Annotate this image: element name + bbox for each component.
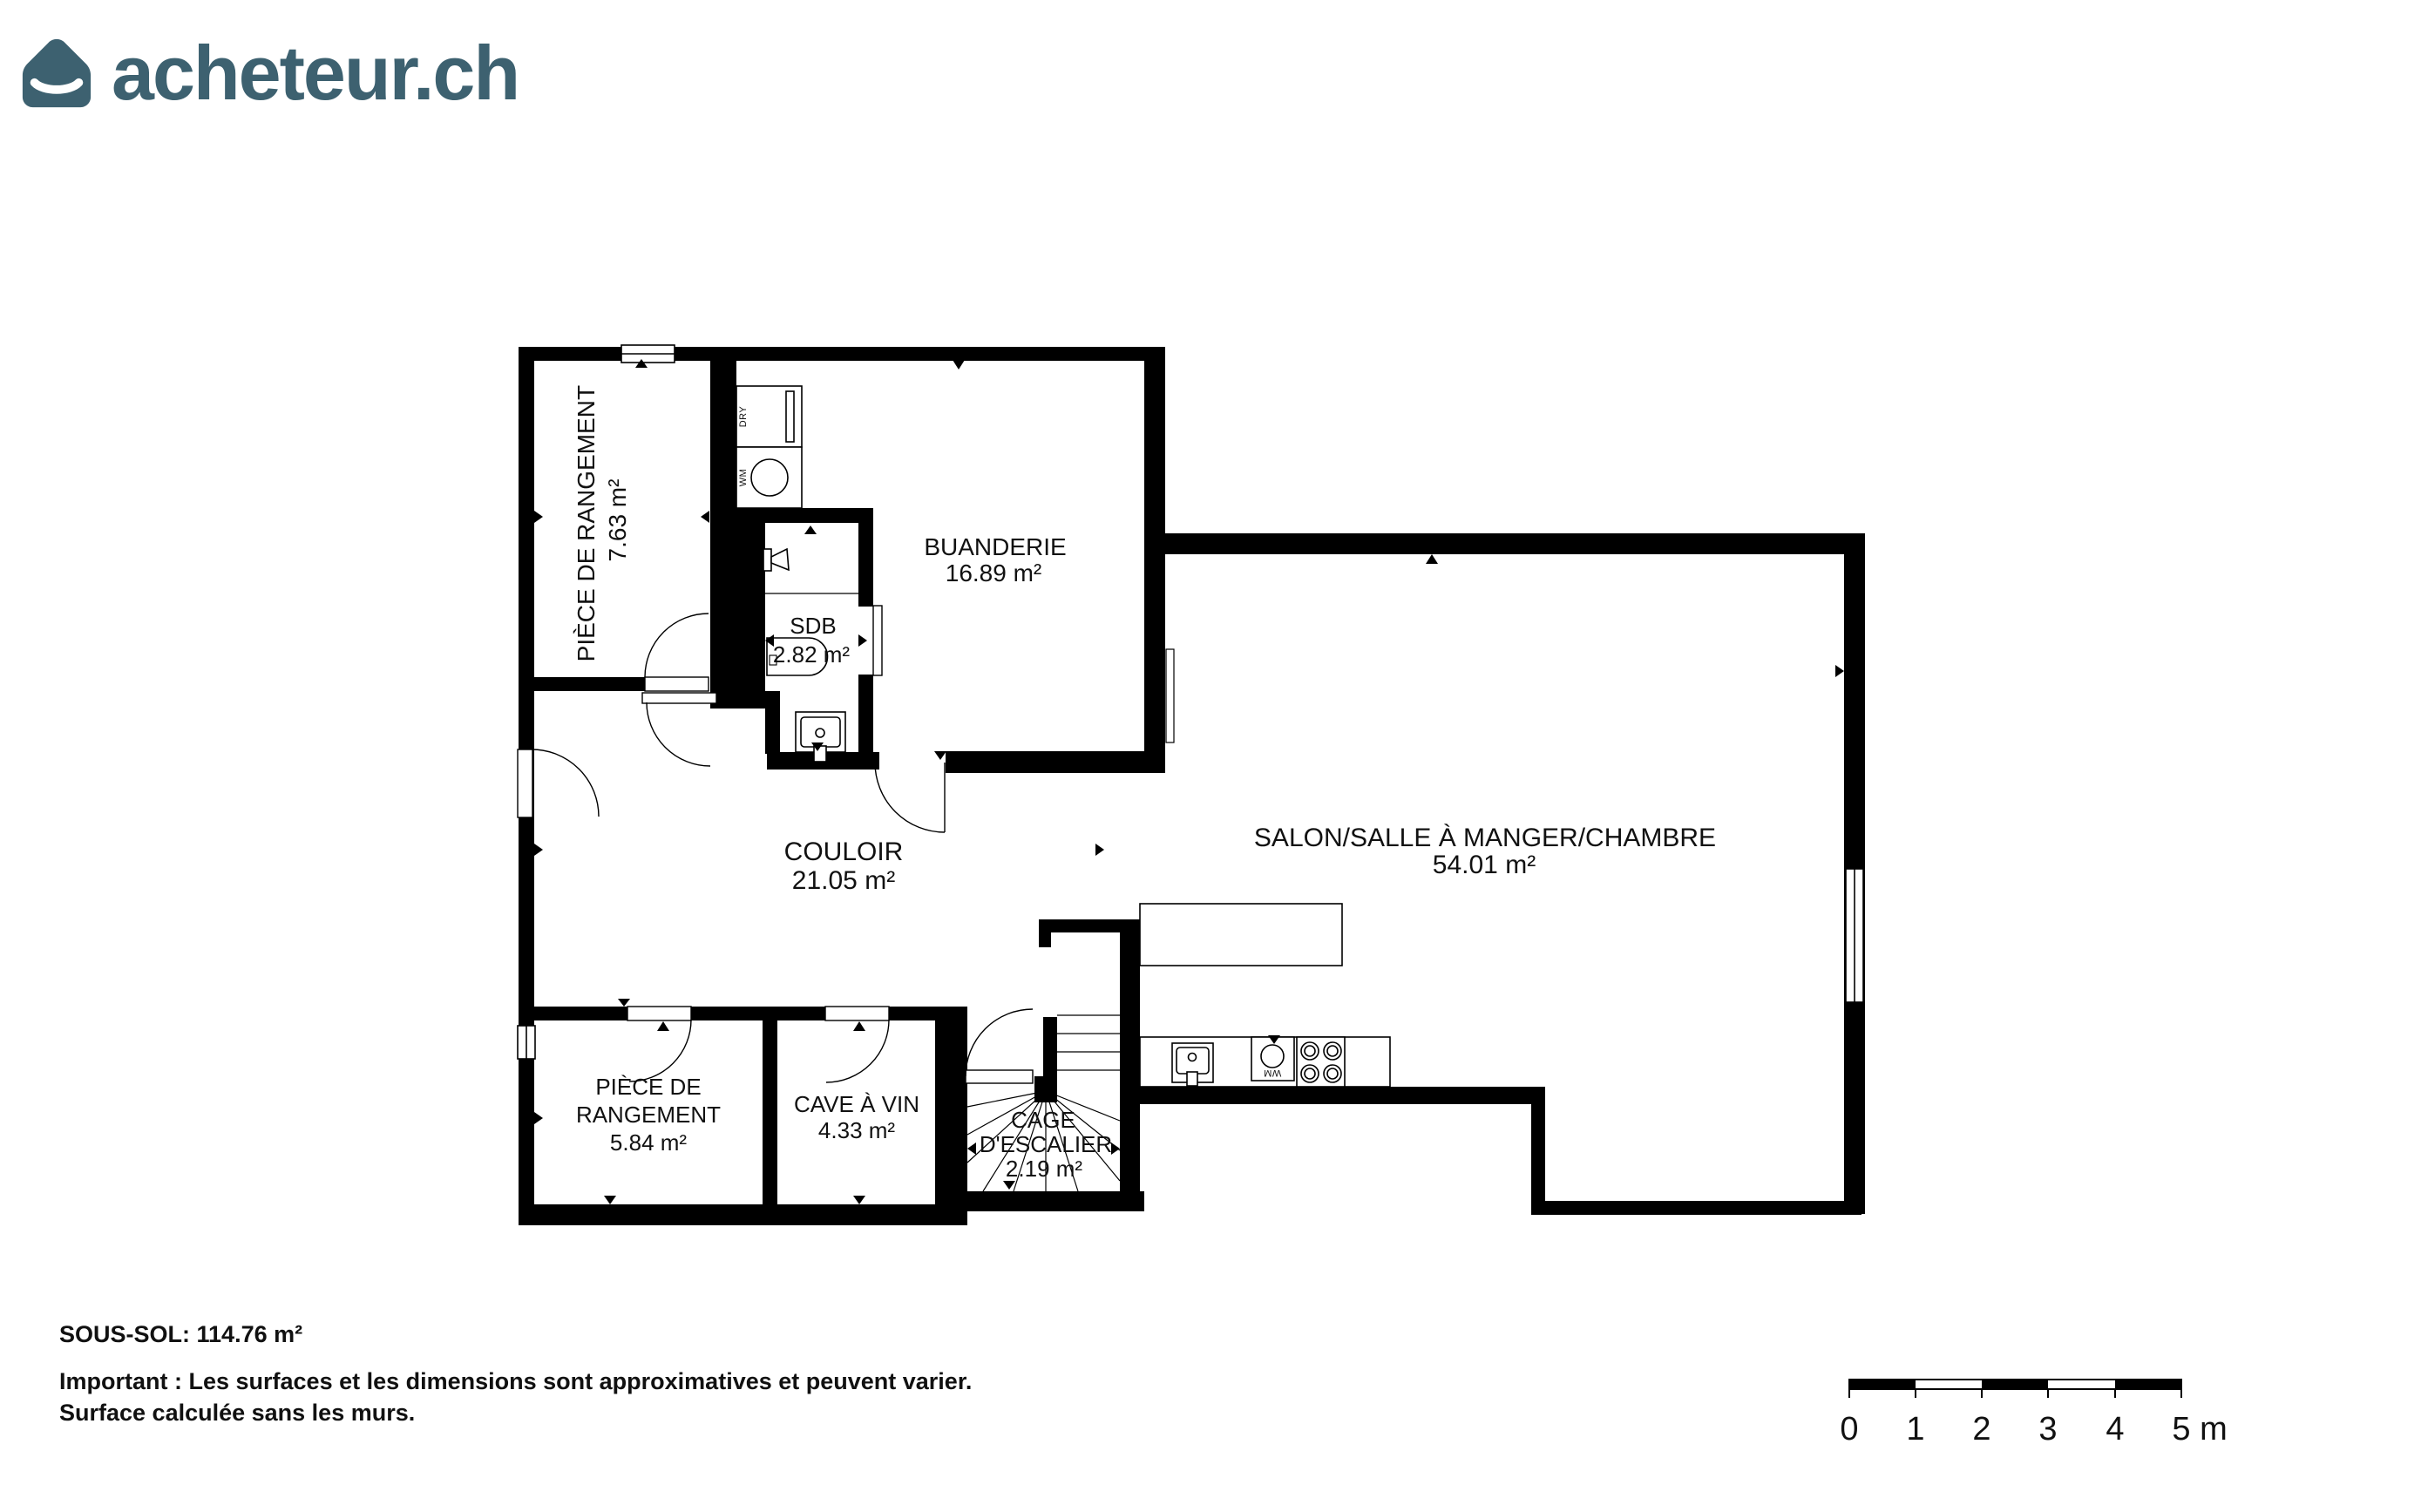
kitchen-washer-label: WM — [1264, 1068, 1282, 1078]
shower-head-icon — [763, 549, 789, 571]
room-label-wine-cellar: CAVE À VIN 4.33 m² — [794, 1091, 919, 1143]
svg-text:D'ESCALIER: D'ESCALIER — [980, 1131, 1112, 1157]
door-storage-bottom — [627, 1007, 691, 1081]
svg-text:COULOIR: COULOIR — [784, 837, 904, 866]
fixtures — [736, 386, 1390, 1087]
washer-label: WM — [738, 469, 749, 487]
window-right — [1846, 869, 1863, 1002]
disclaimer-line-2: Surface calculée sans les murs. — [59, 1400, 415, 1427]
door-hallway-left — [518, 749, 599, 817]
walls — [519, 347, 1865, 1225]
room-label-storage-bottom: PIÈCE DE RANGEMENT 5.84 m² — [576, 1074, 721, 1156]
svg-text:1: 1 — [1906, 1411, 1924, 1448]
door-storage-top — [642, 614, 716, 766]
room-label-living: SALON/SALLE À MANGER/CHAMBRE 54.01 m² — [1254, 824, 1716, 879]
svg-text:4: 4 — [2106, 1411, 2124, 1448]
kitchen-island — [1140, 904, 1342, 966]
scale-unit: m — [2200, 1411, 2228, 1448]
svg-text:PIÈCE DE: PIÈCE DE — [595, 1074, 701, 1100]
svg-text:BUANDERIE: BUANDERIE — [924, 533, 1066, 560]
kitchen-sink — [1172, 1043, 1213, 1086]
svg-text:54.01 m²: 54.01 m² — [1433, 851, 1536, 879]
floor-title: SOUS-SOL: 114.76 m² — [59, 1321, 302, 1348]
scale-bar-labels: 0 1 2 3 4 5 m — [1840, 1411, 2227, 1448]
dryer-label: DRY — [738, 406, 749, 428]
svg-text:16.89 m²: 16.89 m² — [946, 559, 1042, 586]
window-top — [621, 345, 675, 363]
kitchen-hob — [1297, 1037, 1345, 1087]
door-staircase — [966, 1009, 1033, 1083]
room-label-staircase: CAGE D'ESCALIER 2.19 m² — [980, 1107, 1112, 1182]
svg-text:SDB: SDB — [790, 613, 836, 639]
room-label-hallway: COULOIR 21.05 m² — [784, 837, 904, 895]
door-laundry — [875, 763, 945, 832]
svg-text:CAVE À VIN: CAVE À VIN — [794, 1091, 919, 1117]
room-label-laundry: BUANDERIE 16.89 m² — [924, 533, 1066, 586]
svg-text:5.84 m²: 5.84 m² — [610, 1129, 687, 1156]
svg-text:RANGEMENT: RANGEMENT — [576, 1102, 721, 1128]
floor-plan: PIÈCE DE RANGEMENT 7.63 m² BUANDERIE 16.… — [0, 0, 2421, 1512]
svg-text:2.19 m²: 2.19 m² — [1006, 1156, 1082, 1182]
radiator — [1166, 649, 1174, 742]
svg-text:3: 3 — [2038, 1411, 2057, 1448]
svg-text:CAGE: CAGE — [1011, 1107, 1075, 1133]
svg-text:21.05 m²: 21.05 m² — [792, 866, 895, 895]
door-bathroom — [873, 606, 882, 675]
window-left — [518, 1026, 535, 1059]
svg-text:SALON/SALLE À MANGER/CHAMBRE: SALON/SALLE À MANGER/CHAMBRE — [1254, 824, 1716, 852]
disclaimer-line-1: Important : Les surfaces et les dimensio… — [59, 1368, 972, 1395]
scale-bar: 0 1 2 3 4 5 m — [1840, 1380, 2227, 1448]
room-label-storage-top: PIÈCE DE RANGEMENT 7.63 m² — [573, 379, 631, 662]
svg-text:5: 5 — [2172, 1411, 2190, 1448]
svg-text:0: 0 — [1840, 1411, 1858, 1448]
svg-text:4.33 m²: 4.33 m² — [818, 1117, 895, 1143]
door-wine-cellar — [825, 1007, 889, 1082]
svg-text:2: 2 — [1972, 1411, 1990, 1448]
svg-text:2.82 m²: 2.82 m² — [773, 641, 850, 668]
